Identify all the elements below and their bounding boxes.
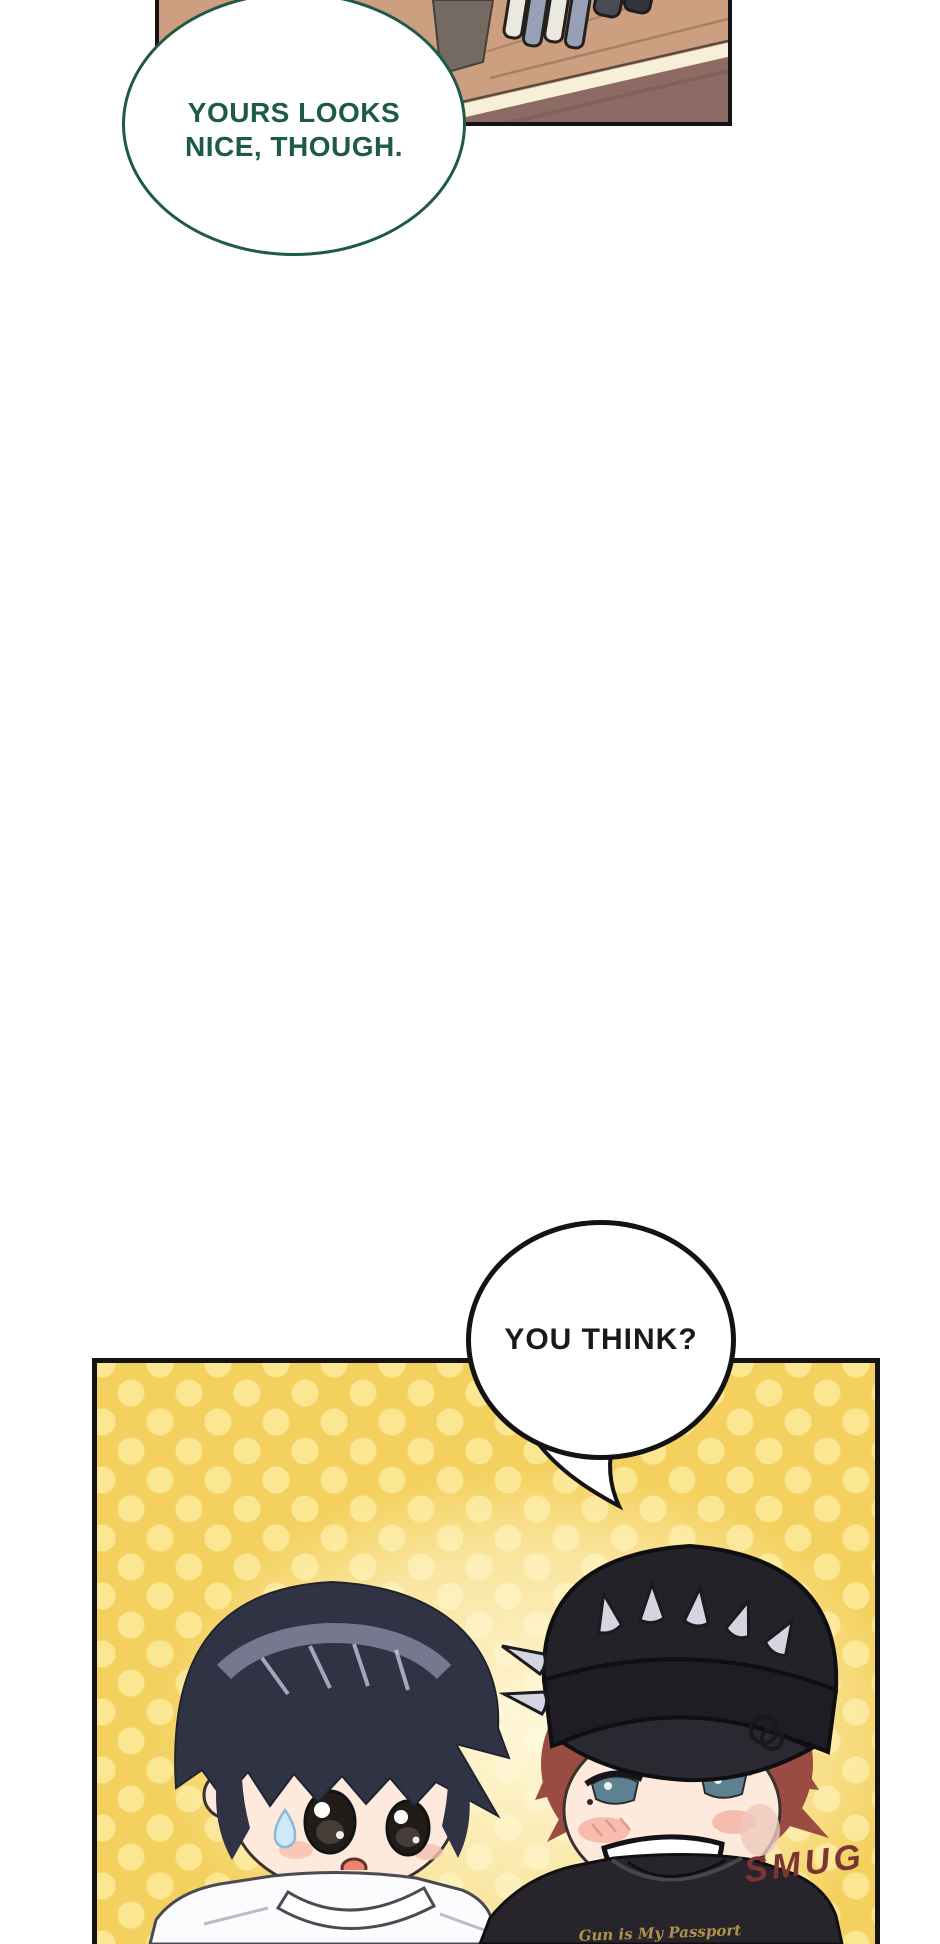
spiked-cap	[502, 1546, 836, 1780]
left-boy	[150, 1582, 509, 1944]
speech-bubble-top: YOURS LOOKS NICE, THOUGH.	[122, 0, 466, 256]
comic-page: YOURS LOOKS NICE, THOUGH.	[0, 0, 940, 1944]
right-boy-mole	[587, 1799, 593, 1805]
speech-text-you-think: YOU THINK?	[504, 1323, 697, 1357]
speech-text-top: YOURS LOOKS NICE, THOUGH.	[185, 96, 403, 164]
speech-bubble-you-think: YOU THINK?	[466, 1220, 736, 1460]
panel-bottom-characters: Gun is My Passport SMUG	[92, 1358, 880, 1944]
